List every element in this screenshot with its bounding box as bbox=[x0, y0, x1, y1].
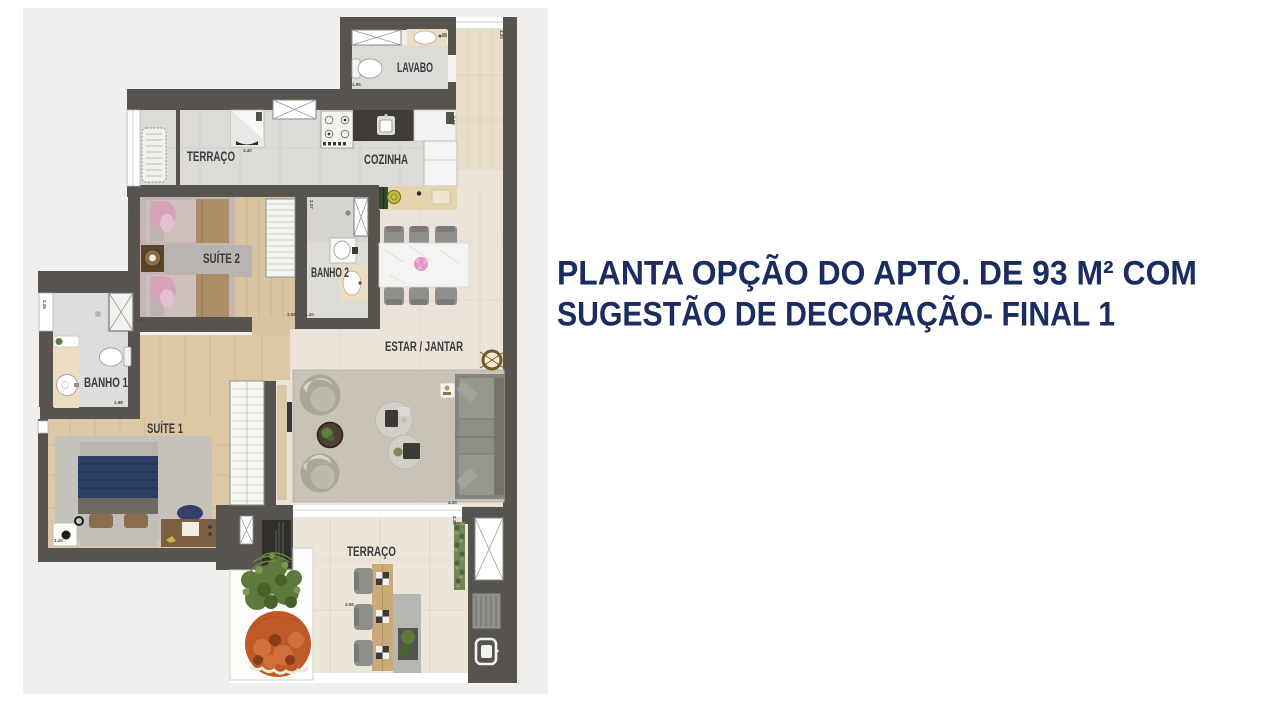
svg-text:4.30: 4.30 bbox=[448, 500, 457, 505]
svg-text:LAVABO: LAVABO bbox=[397, 60, 433, 75]
svg-text:1.90: 1.90 bbox=[136, 318, 145, 323]
svg-text:1.20: 1.20 bbox=[305, 312, 314, 317]
svg-text:1.40: 1.40 bbox=[129, 209, 134, 218]
svg-text:TERRAÇO: TERRAÇO bbox=[347, 544, 396, 559]
svg-text:3.06: 3.06 bbox=[345, 602, 354, 607]
svg-text:2.37: 2.37 bbox=[309, 200, 314, 209]
svg-text:2.80: 2.80 bbox=[451, 116, 456, 125]
svg-text:3.40: 3.40 bbox=[243, 148, 252, 153]
svg-text:SUÍTE 2: SUÍTE 2 bbox=[203, 251, 240, 266]
svg-text:3.20: 3.20 bbox=[54, 538, 63, 543]
svg-text:ESTAR / JANTAR: ESTAR / JANTAR bbox=[385, 339, 463, 354]
svg-text:SUÍTE 1: SUÍTE 1 bbox=[147, 421, 183, 436]
svg-text:SUGESTÃO DE DECORAÇÃO- FINAL 1: SUGESTÃO DE DECORAÇÃO- FINAL 1 bbox=[557, 295, 1115, 333]
svg-text:3.08: 3.08 bbox=[287, 312, 296, 317]
svg-text:PLANTA OPÇÃO DO APTO. DE 93 M²: PLANTA OPÇÃO DO APTO. DE 93 M² COM bbox=[557, 255, 1197, 293]
svg-text:BANHO 2: BANHO 2 bbox=[311, 265, 349, 280]
svg-text:COZINHA: COZINHA bbox=[364, 152, 408, 167]
svg-text:2.30: 2.30 bbox=[452, 516, 457, 525]
svg-text:4.25: 4.25 bbox=[499, 30, 504, 39]
svg-text:2.25: 2.25 bbox=[42, 300, 47, 309]
svg-text:BANHO 1: BANHO 1 bbox=[84, 375, 128, 390]
svg-text:TERRAÇO: TERRAÇO bbox=[187, 149, 235, 164]
svg-text:1.98: 1.98 bbox=[114, 400, 123, 405]
svg-text:1.95: 1.95 bbox=[352, 82, 361, 87]
